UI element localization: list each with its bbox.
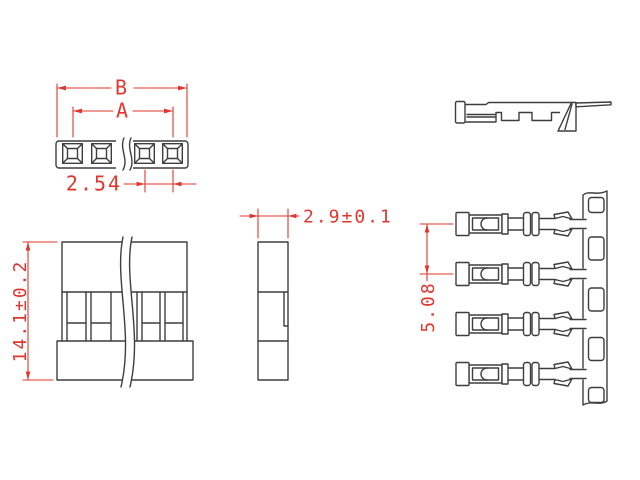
dimension-thickness: 2.9±0.1 [240, 207, 393, 239]
housing-top-view [56, 138, 188, 171]
arrowhead [288, 214, 297, 219]
housing-front-view [57, 237, 193, 387]
arrowhead [250, 214, 259, 219]
dim-a-label: A [116, 99, 130, 123]
terminal-2 [456, 262, 586, 286]
dim-terminal-pitch-label: 5.08 [418, 281, 439, 332]
arrowhead [137, 182, 146, 187]
dim-pitch-label: 2.54 [66, 172, 122, 196]
arrowhead [425, 266, 430, 275]
terminal-strip-view [456, 191, 607, 405]
dim-height-label: 14.1±0.2 [10, 260, 31, 363]
arrowhead [178, 86, 187, 91]
dimension-terminal-pitch: 5.08 [418, 224, 453, 333]
connector-drawing: B A 2.54 14.1±0.2 [0, 0, 640, 480]
arrowhead [425, 224, 430, 233]
dim-b-label: B [115, 76, 129, 100]
dimension-height: 14.1±0.2 [10, 242, 57, 380]
technical-drawing-page: B A 2.54 14.1±0.2 [0, 0, 640, 480]
terminal-1 [456, 212, 586, 236]
terminal-4 [456, 362, 586, 386]
arrowhead [57, 86, 66, 91]
arrowhead [26, 372, 31, 381]
housing-side-view [258, 242, 288, 380]
terminal-side-view [456, 102, 612, 132]
arrowhead [26, 242, 31, 251]
arrowhead [73, 109, 82, 114]
carrier-strip-edge [576, 102, 611, 107]
dim-thickness-label: 2.9±0.1 [303, 207, 393, 228]
dimension-A: A [73, 99, 173, 138]
arrowhead [173, 182, 182, 187]
dimension-pitch: 2.54 [66, 170, 196, 196]
terminal-3 [456, 312, 586, 336]
arrowhead [164, 109, 173, 114]
